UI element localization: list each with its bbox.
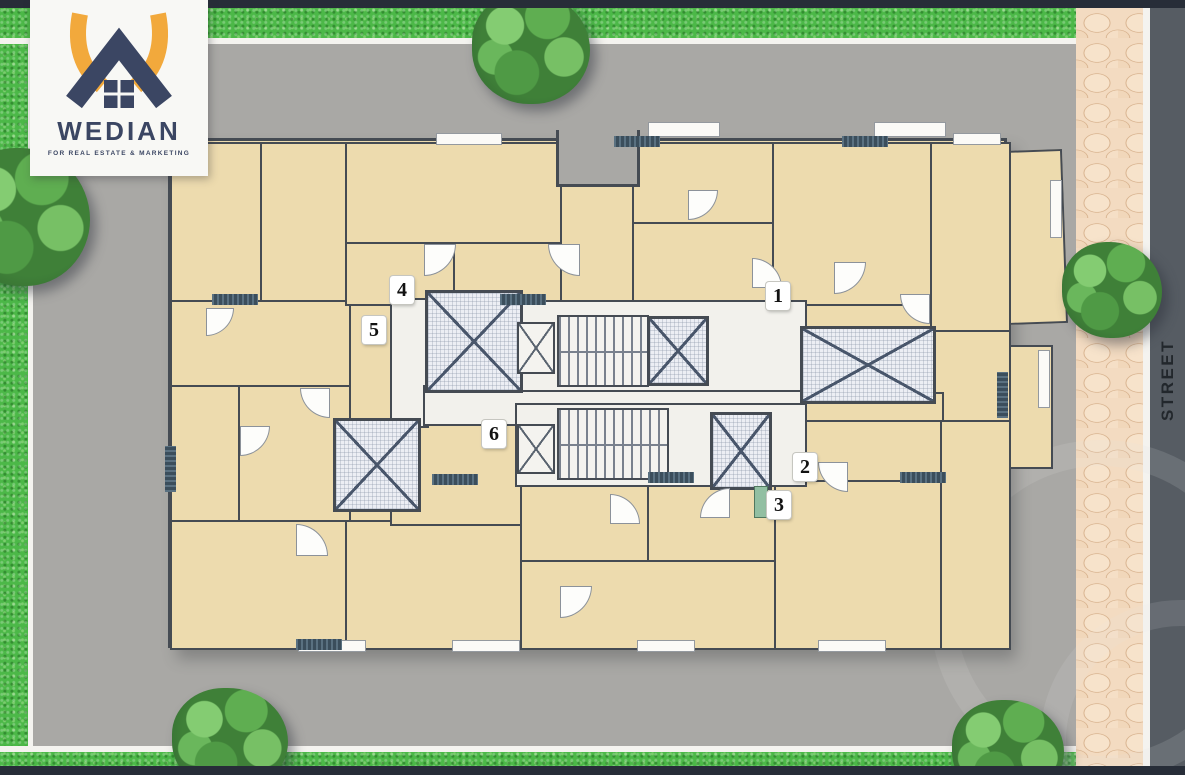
wall-section <box>296 639 342 650</box>
unit-badge-3: 3 <box>767 491 791 519</box>
wall-section <box>614 136 660 147</box>
site-border-bottom <box>0 766 1185 775</box>
window <box>637 640 695 652</box>
room <box>345 520 524 650</box>
wall-section <box>212 294 258 305</box>
grass-strip-left <box>0 8 28 768</box>
unit-badge-4: 4 <box>390 276 414 304</box>
window <box>818 640 886 652</box>
light-shaft <box>425 290 523 393</box>
unit-badge-2: 2 <box>793 453 817 481</box>
light-shaft <box>800 326 936 404</box>
wall-section <box>900 472 946 483</box>
staircase <box>557 315 649 387</box>
unit-badge-1: 1 <box>766 282 790 310</box>
light-shaft <box>647 316 709 386</box>
wall-section <box>997 372 1008 418</box>
room <box>930 142 1011 336</box>
wall-section <box>500 294 546 305</box>
street-label: STREET <box>1158 339 1178 421</box>
room <box>260 142 351 306</box>
entrance-door-marker <box>754 486 768 518</box>
room <box>345 142 566 248</box>
room <box>772 480 944 650</box>
unit-badge-6: 6 <box>482 420 506 448</box>
window <box>1050 180 1062 238</box>
wall-section <box>842 136 888 147</box>
brand-name: WEDIAN <box>57 116 180 147</box>
tree-icon <box>472 0 590 104</box>
room <box>940 420 1011 650</box>
window <box>452 640 520 652</box>
window <box>436 133 502 145</box>
elevator <box>517 424 555 474</box>
light-shaft <box>333 418 421 512</box>
window <box>1038 350 1050 408</box>
curb-line-bottom <box>0 746 1076 752</box>
room <box>170 300 351 391</box>
brand-tagline: FOR REAL ESTATE & MARKETING <box>48 150 190 157</box>
tree-icon <box>1062 242 1162 338</box>
elevator <box>517 322 555 374</box>
wedian-logo-icon <box>58 8 180 120</box>
room <box>520 560 776 650</box>
window <box>953 133 1001 145</box>
room <box>170 385 244 526</box>
tree-icon <box>172 688 288 775</box>
staircase <box>557 408 669 480</box>
site-plan-scene: STREET <box>0 0 1185 775</box>
wall-section <box>432 474 478 485</box>
wall-section <box>648 472 694 483</box>
logo-card: WEDIAN FOR REAL ESTATE & MARKETING <box>30 0 208 176</box>
unit-badge-5: 5 <box>362 316 386 344</box>
window <box>648 122 720 137</box>
light-shaft <box>710 412 772 490</box>
wall-section <box>165 446 176 492</box>
window <box>874 122 946 137</box>
